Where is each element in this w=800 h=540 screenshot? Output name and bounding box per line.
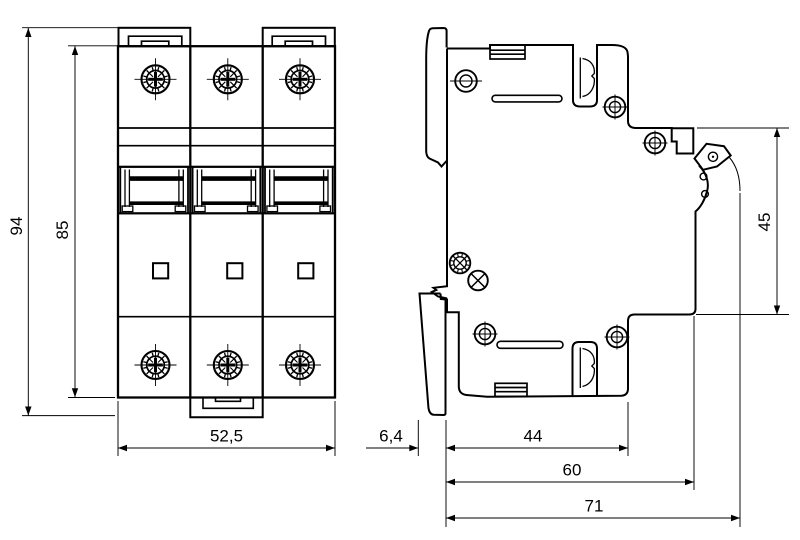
dim-width bbox=[118, 445, 335, 451]
adjuster-screw-icon bbox=[450, 253, 471, 274]
front-body-outline bbox=[118, 46, 335, 397]
terminal-screw-icon bbox=[207, 344, 249, 386]
top-clip-left bbox=[119, 28, 191, 46]
indicator-window bbox=[153, 263, 168, 278]
dim-label-body-height: 85 bbox=[53, 221, 72, 240]
dim-label-din-offset: 6,4 bbox=[379, 427, 403, 446]
side-body-outline-left bbox=[432, 49, 447, 299]
upper-terminal-flange bbox=[426, 28, 447, 167]
housing-screw-icon bbox=[643, 131, 668, 156]
terminal-screw-icon bbox=[279, 344, 321, 386]
terminal-screw-icon bbox=[135, 344, 177, 386]
dim-label-total-height: 94 bbox=[7, 217, 26, 236]
dim-label-width: 52,5 bbox=[210, 427, 243, 446]
dim-label-front-height: 45 bbox=[755, 213, 774, 232]
housing-screw-icon bbox=[605, 325, 630, 350]
toggle-recess-pole3 bbox=[265, 167, 333, 214]
dim-total-height bbox=[25, 28, 31, 416]
front-view bbox=[118, 28, 335, 418]
terminal-screw-icon bbox=[207, 58, 249, 100]
flange-screw-icon bbox=[450, 70, 482, 92]
technical-drawing: 94 85 52,5 bbox=[0, 0, 800, 540]
indicator-window bbox=[227, 263, 242, 278]
dim-body-height bbox=[72, 46, 78, 397]
indicator-window bbox=[298, 263, 313, 278]
dim-label-total-depth: 71 bbox=[585, 497, 604, 516]
vent-slot bbox=[492, 95, 562, 102]
test-button-icon bbox=[468, 271, 488, 291]
housing-screw-icon bbox=[603, 95, 628, 120]
dim-front-height bbox=[774, 128, 780, 315]
bottom-lock-tab bbox=[495, 383, 527, 396]
dim-label-body-depth: 44 bbox=[524, 427, 543, 446]
dim-din-offset bbox=[366, 445, 418, 451]
front-dimensions: 94 85 52,5 bbox=[7, 28, 335, 456]
toggle-recess-pole1 bbox=[120, 167, 188, 214]
dim-body-depth bbox=[446, 445, 628, 451]
housing-screw-icon bbox=[473, 322, 498, 347]
terminal-screw-icon bbox=[135, 58, 177, 100]
technical-drawing-page: 94 85 52,5 bbox=[0, 0, 800, 540]
top-clip-right bbox=[263, 28, 335, 46]
side-body-outline-front bbox=[447, 166, 708, 397]
top-latch-slot bbox=[580, 58, 594, 99]
din-clip-tab bbox=[190, 398, 262, 418]
vent-slot bbox=[497, 341, 563, 348]
side-dimensions: 6,4 44 60 71 45 bbox=[366, 128, 789, 527]
dim-depth-to-front bbox=[446, 479, 694, 485]
lower-terminal-flange bbox=[420, 294, 446, 416]
dim-label-depth-to-front: 60 bbox=[563, 461, 582, 480]
lever-sweep-arc bbox=[730, 158, 741, 192]
operating-lever bbox=[695, 144, 731, 170]
bottom-latch-slot bbox=[573, 342, 598, 397]
top-lock-tab bbox=[490, 45, 525, 59]
terminal-screw-icon bbox=[279, 58, 321, 100]
side-view bbox=[420, 28, 741, 415]
toggle-recess-pole2 bbox=[193, 167, 261, 214]
dim-total-depth bbox=[446, 515, 740, 521]
